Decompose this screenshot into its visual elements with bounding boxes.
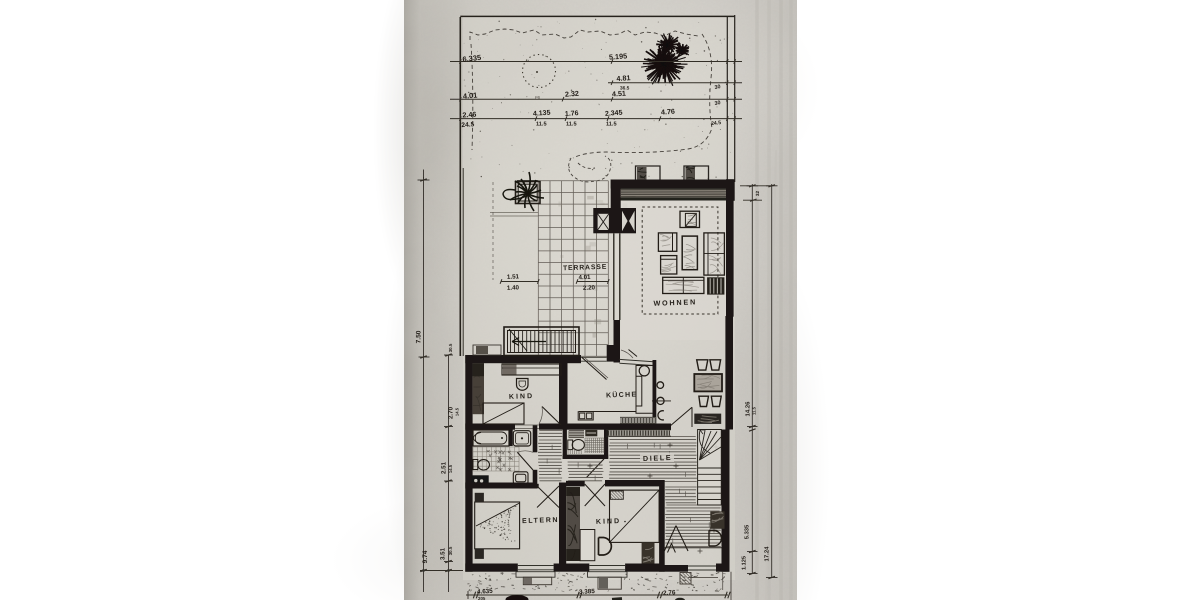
svg-text:24.5: 24.5	[711, 120, 722, 127]
svg-text:4.01: 4.01	[463, 91, 478, 101]
svg-text:KIND: KIND	[509, 393, 534, 401]
svg-text:2.46: 2.46	[462, 110, 477, 120]
svg-text:24.5: 24.5	[461, 121, 475, 129]
svg-text:205: 205	[478, 596, 486, 600]
svg-text:DIELE: DIELE	[643, 453, 672, 463]
svg-text:30: 30	[714, 100, 721, 107]
svg-text:30.5: 30.5	[448, 546, 453, 555]
svg-text:1.125: 1.125	[742, 556, 748, 570]
svg-text:32: 32	[755, 191, 760, 197]
svg-text:1.40: 1.40	[507, 284, 520, 292]
svg-text:1.76: 1.76	[565, 110, 579, 118]
svg-text:1.51: 1.51	[507, 273, 520, 281]
svg-text:KIND: KIND	[596, 518, 621, 526]
svg-text:11.5: 11.5	[606, 122, 617, 128]
svg-text:30.5: 30.5	[448, 343, 453, 352]
svg-text:3.51: 3.51	[439, 547, 446, 560]
svg-text:14.26: 14.26	[745, 401, 752, 417]
svg-text:3.385: 3.385	[579, 588, 596, 596]
svg-text:5.195: 5.195	[609, 51, 628, 61]
svg-text:2.70: 2.70	[448, 406, 455, 419]
svg-text:2.345: 2.345	[605, 110, 623, 118]
svg-text:4.76: 4.76	[661, 107, 676, 117]
svg-text:KÜCHE: KÜCHE	[606, 390, 638, 399]
svg-text:9.74: 9.74	[422, 550, 429, 563]
svg-text:4.51: 4.51	[612, 89, 627, 99]
svg-text:5.335: 5.335	[744, 524, 751, 539]
svg-text:17.24: 17.24	[763, 546, 770, 562]
svg-text:2.76: 2.76	[663, 589, 676, 597]
svg-text:4.81: 4.81	[616, 73, 631, 83]
svg-text:14.5: 14.5	[455, 407, 460, 416]
svg-text:11.5: 11.5	[752, 406, 757, 415]
svg-text:7.50: 7.50	[416, 330, 423, 343]
svg-text:30: 30	[714, 84, 721, 91]
svg-text:4.135: 4.135	[533, 110, 551, 118]
svg-text:2.32: 2.32	[565, 89, 580, 99]
svg-text:11.5: 11.5	[536, 122, 547, 128]
svg-text:14.5: 14.5	[448, 464, 453, 473]
svg-text:2.51: 2.51	[441, 461, 448, 474]
svg-text:4.01: 4.01	[578, 274, 591, 282]
svg-text:ELTERN: ELTERN	[522, 517, 559, 525]
svg-text:WOHNEN: WOHNEN	[653, 297, 697, 308]
svg-text:11.5: 11.5	[566, 122, 577, 128]
svg-text:2.20: 2.20	[583, 284, 596, 292]
svg-text:4.635: 4.635	[477, 588, 494, 596]
